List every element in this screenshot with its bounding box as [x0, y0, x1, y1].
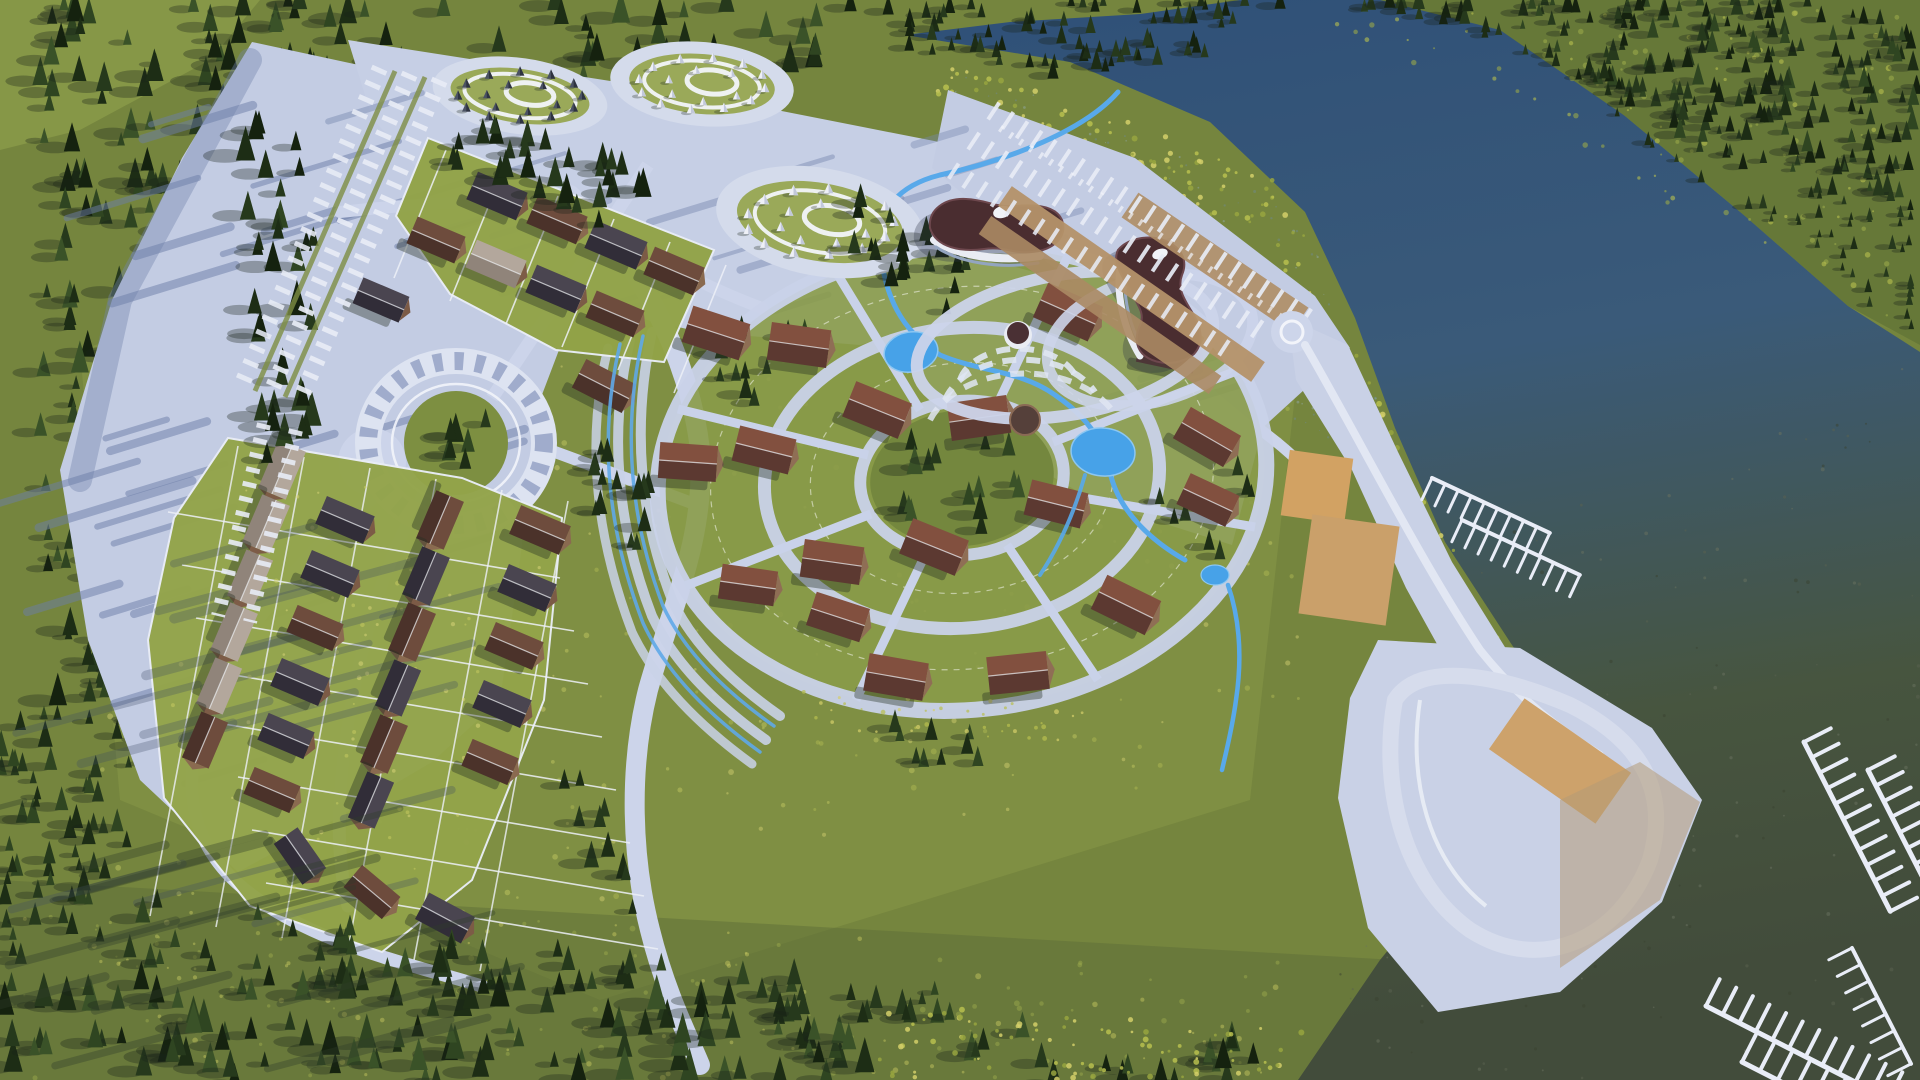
aerial-masterplan-stage — [0, 0, 1920, 1080]
masterplan-render — [0, 0, 1920, 1080]
